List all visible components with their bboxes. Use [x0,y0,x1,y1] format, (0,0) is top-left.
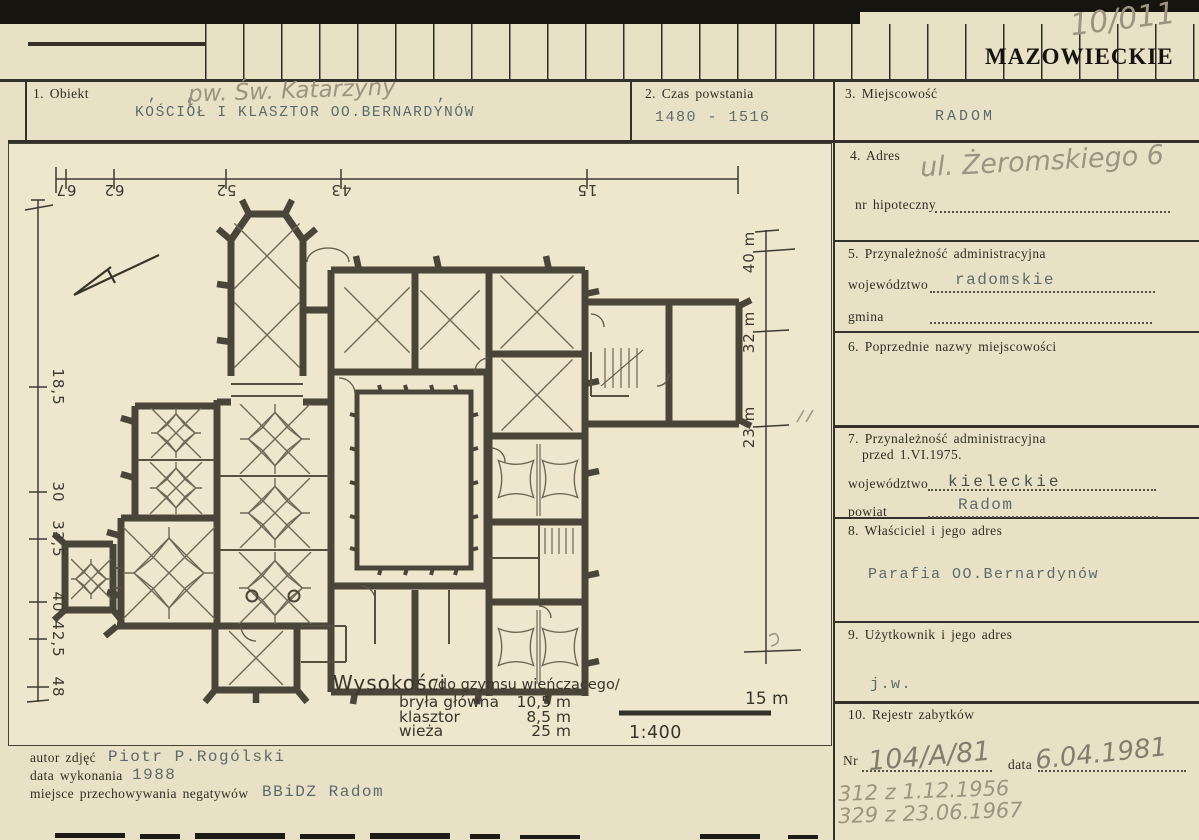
adres-label: 4. Adres [850,148,900,164]
rule-s5-bottom [833,331,1199,333]
dim-left-label-1: 30 [49,481,67,502]
dim-left-label-3: 40 [49,591,67,612]
rule-top [0,79,1199,82]
voivodeship-stamp: MAZOWIECKIE [985,44,1174,70]
przynaleznosc-label: 5. Przynależność administracyjna [848,246,1046,262]
heights-row-2-name: wieża [399,722,443,740]
dim-top-label-4: 15 [576,181,597,199]
wojewodztwo1975-label: województwo [848,476,928,492]
scan-dash [700,834,760,839]
courtyard-pilasters [350,385,478,575]
row1-divider-1 [630,82,632,140]
plan-panel: 67 62 52 43 15 18,5 30 33,5 40 42,5 48 4… [8,143,832,746]
vault-patterns [71,223,578,685]
rule-s4-bottom [833,240,1199,242]
dim-right-label-0: 40 m [740,231,758,273]
credits-autor-label: autor zdjęć [30,750,96,766]
heritage-record-card: { "header": { "voivodeship_stamp": "MAZO… [0,0,1199,840]
scan-dash [470,834,500,839]
adres-handwritten: ul. Żeromskiego 6 [919,140,1164,184]
scan-dash [520,835,580,839]
rule-s8-bottom [833,621,1199,623]
right-column-divider [833,80,835,840]
powiat-label: powiat [848,504,887,520]
scan-dash [300,834,355,839]
dim-left-label-4: 42,5 [49,620,67,657]
floor-plan-svg: 67 62 52 43 15 18,5 30 33,5 40 42,5 48 4… [9,144,830,744]
dim-left-label-0: 18,5 [49,368,67,405]
scan-dash [195,833,285,839]
rejestr-data-label: data [1008,757,1032,773]
credits-data-value: 1988 [132,766,176,784]
wojewodztwo-label: województwo [848,277,928,293]
rule-s6-bottom [833,425,1199,428]
poprzednie-label: 6. Poprzednie nazwy miejscowości [848,339,1057,355]
credits-negatywy-label: miejsce przechowywania negatywów [30,786,248,802]
plan-partitions [113,352,629,662]
field-obiekt-label: 1. Obiekt [33,86,89,102]
credits-data-label: data wykonania [30,768,123,784]
wlasciciel-value: Parafia OO.Bernardynów [868,566,1099,583]
dim-right-label-1: 32 m [740,311,758,353]
credits-negatywy-value: BBiDZ Radom [262,783,384,801]
heights-title: Wysokości [333,671,446,695]
field-czas-value: 1480 - 1516 [655,109,771,126]
wojewodztwo-value: radomskie [955,271,1055,289]
plan-walls [54,200,751,704]
pencil-marks [769,410,813,646]
scale-ratio-label: 1:400 [629,723,682,743]
przynaleznosc1975-label2: przed 1.VI.1975. [862,447,962,463]
rejestr-pencil-entry-2: 329 z 23.06.1967 [838,798,1023,828]
obiekt-comma-right: , [437,88,448,105]
dim-left-label-2: 33,5 [49,520,67,557]
uzytkownik-label: 9. Użytkownik i jego adres [848,627,1012,643]
gmina-dotted-line [930,322,1152,324]
rule-s9-bottom [833,701,1199,704]
field-miejscowosc-label: 3. Miejscowość [845,86,937,102]
top-heavy-line [28,42,206,46]
field-miejscowosc-value: RADOM [935,108,995,125]
hipoteczny-label: nr hipoteczny [855,197,936,213]
wlasciciel-label: 8. Właściciel i jego adres [848,523,1002,539]
scan-dash [55,833,125,838]
uzytkownik-value: j.w. [870,676,912,693]
scan-edge-top-left [0,0,860,24]
dim-top-label-0: 67 [55,181,76,199]
wojewodztwo1975-dotted-line [928,489,1156,491]
field-czas-label: 2. Czas powstania [645,86,754,102]
hipoteczny-dotted-line [935,211,1170,213]
scan-dash [370,833,450,839]
scan-dash [140,834,180,839]
scalebar-label: 15 m [745,689,789,709]
heights-row-2-value: 25 m [531,722,571,740]
scan-dash [788,835,818,839]
dim-top-label-2: 52 [215,181,236,199]
row1-left-border [25,82,27,140]
rejestr-label: 10. Rejestr zabytków [848,707,974,723]
gmina-label: gmina [848,309,884,325]
north-arrow-icon [74,255,159,295]
dim-top-label-3: 43 [330,181,351,199]
dim-left-label-5: 48 [49,676,67,697]
heights-subtitle: /do gzymsu wieńczącego/ [433,677,620,693]
powiat-value: Radom [958,496,1014,514]
powiat-dotted-line [928,516,1158,518]
dim-right-label-2: 23 m [740,406,758,448]
credits-autor-value: Piotr P.Rogólski [108,748,286,766]
rejestr-nr-label: Nr [843,753,858,769]
wojewodztwo-dotted-line [930,291,1155,293]
dim-top-label-1: 62 [103,181,124,199]
przynaleznosc1975-label: 7. Przynależność administracyjna [848,431,1046,447]
field-obiekt-value: KOŚCIÓŁ I KLASZTOR OO.BERNARDYNÓW [135,105,475,121]
